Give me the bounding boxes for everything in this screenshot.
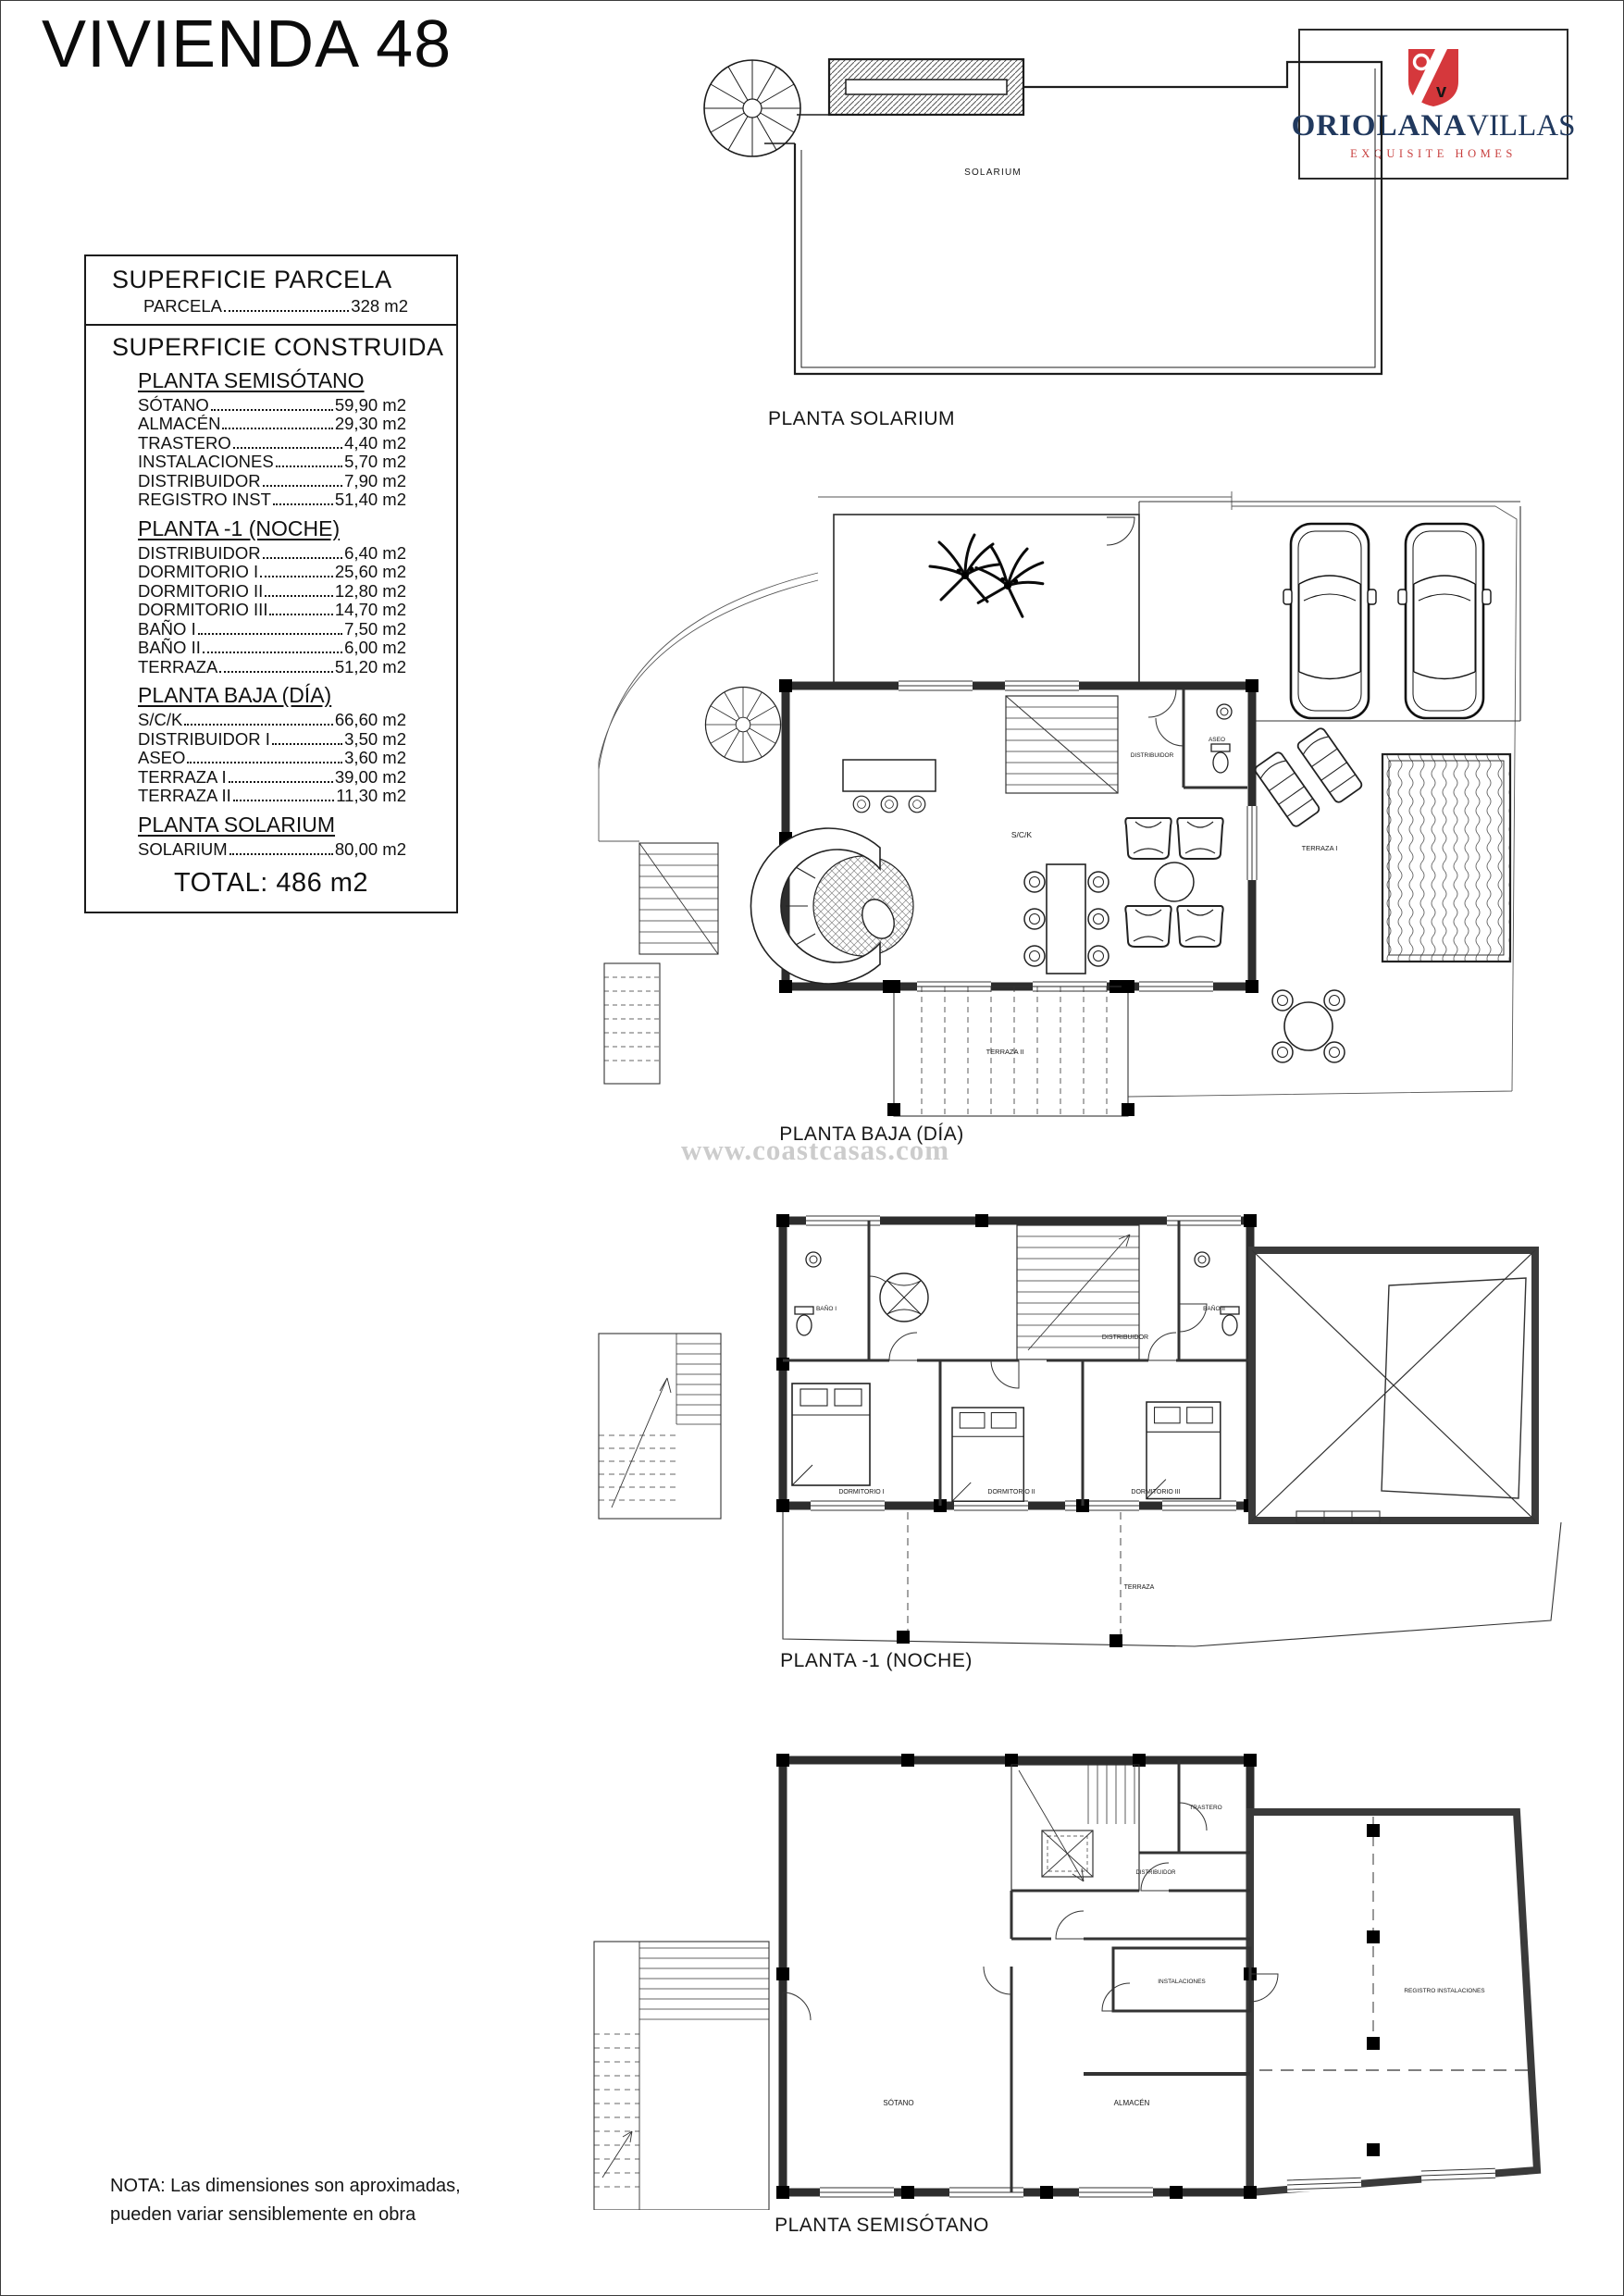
surface-row: DISTRIBUIDOR7,90 m2 [138, 472, 406, 491]
spiral-staircase [705, 687, 780, 762]
dotted-leader [233, 800, 334, 801]
kitchen-island [843, 760, 936, 813]
plan-sheet: VIVIENDA 48 v ORIOLANAVILLAS EXQUISITE H… [0, 0, 1624, 2296]
surface-group: PLANTA SOLARIUM SOLARIUM80,00 m2 [86, 813, 456, 860]
surface-row: ALMACÉN29,30 m2 [138, 415, 406, 434]
parcela-section: SUPERFICIE PARCELA PARCELA328 m2 [86, 256, 456, 326]
plan-noche: BAÑO I BAÑO II DISTRIBUIDOR DORMITORIO I… [584, 1193, 1620, 1656]
dotted-leader [272, 743, 342, 745]
surface-row-label: TERRAZA [138, 658, 217, 677]
room-label-terraza1: TERRAZA I [1302, 844, 1338, 852]
surface-row: INSTALACIONES5,70 m2 [138, 453, 406, 472]
plan-solarium: SOLARIUM [649, 34, 1583, 404]
dotted-leader [184, 724, 333, 726]
surface-row: TERRAZA I39,00 m2 [138, 768, 406, 788]
palm-tree [930, 535, 1050, 619]
terrace-boundary [783, 1512, 1561, 1647]
page-title: VIVIENDA 48 [42, 6, 452, 82]
registro-walls [1250, 1812, 1537, 2192]
surface-row: SOLARIUM80,00 m2 [138, 840, 406, 860]
surface-total: TOTAL: 486 m2 [86, 868, 456, 899]
car [1398, 524, 1491, 718]
surface-group-heading: PLANTA -1 (NOCHE) [138, 516, 340, 541]
note-line1: NOTA: Las dimensiones son aproximadas, [110, 2172, 461, 2201]
surface-row-value: 3,60 m2 [344, 749, 406, 768]
surface-row: BAÑO I7,50 m2 [138, 620, 406, 639]
room-label-instalaciones: INSTALACIONES [1158, 1979, 1206, 1985]
surface-row: BAÑO II6,00 m2 [138, 639, 406, 658]
surface-group-heading: PLANTA SEMISÓTANO [138, 368, 365, 393]
surface-row-label: DISTRIBUIDOR I [138, 730, 270, 750]
surface-row-label: BAÑO I [138, 620, 196, 639]
room-label-almacen: ALMACÉN [1114, 2099, 1150, 2107]
surface-group-heading: PLANTA BAJA (DÍA) [138, 683, 331, 708]
surface-row: PARCELA328 m2 [143, 297, 408, 316]
room-label-bano2: BAÑO II [1203, 1304, 1225, 1312]
surface-row-label: TERRAZA I [138, 768, 227, 788]
dotted-leader [263, 485, 343, 487]
surface-row-label: ASEO [138, 749, 185, 768]
left-staircase [604, 843, 718, 1084]
parcela-heading: SUPERFICIE PARCELA [112, 266, 456, 294]
surface-row-label: DORMITORIO II [138, 582, 263, 602]
surface-row: DISTRIBUIDOR I3,50 m2 [138, 730, 406, 750]
surface-row-value: 7,90 m2 [344, 472, 406, 491]
left-staircase [599, 1334, 721, 1519]
dotted-leader [224, 310, 349, 312]
room-label-terraza: TERRAZA [1124, 1584, 1155, 1591]
surface-group: PLANTA SEMISÓTANO SÓTANO59,90 m2 ALMACÉN… [86, 368, 456, 510]
dotted-leader [203, 652, 342, 653]
dotted-leader [198, 633, 342, 635]
surface-row: DORMITORIO III14,70 m2 [138, 601, 406, 620]
surface-row-label: DISTRIBUIDOR [138, 544, 261, 564]
dotted-leader [276, 465, 342, 467]
car [1283, 524, 1376, 718]
room-label-sotano: SÓTANO [883, 2099, 913, 2107]
surface-row-value: 3,50 m2 [344, 730, 406, 750]
construida-heading: SUPERFICIE CONSTRUIDA [112, 333, 456, 362]
surface-row-label: S/C/K [138, 711, 182, 730]
surface-row-value: 7,50 m2 [344, 620, 406, 639]
caption-solarium: PLANTA SOLARIUM [768, 408, 955, 430]
surface-row-value: 51,40 m2 [335, 490, 406, 510]
hatched-wall [829, 59, 1023, 115]
surface-row-value: 39,00 m2 [335, 768, 406, 788]
room-label-bano1: BAÑO I [816, 1304, 837, 1312]
surface-row-value: 66,60 m2 [335, 711, 406, 730]
surface-row-label: SOLARIUM [138, 840, 228, 860]
room-label-aseo: ASEO [1209, 737, 1225, 743]
terrace-table [1272, 990, 1345, 1062]
note: NOTA: Las dimensiones son aproximadas, p… [110, 2172, 461, 2229]
right-terrace [1254, 726, 1510, 1062]
bed [952, 1408, 1023, 1501]
surface-row: S/C/K66,60 m2 [138, 711, 406, 730]
surface-row-label: REGISTRO INST [138, 490, 271, 510]
room-label-distribuidor: DISTRIBUIDOR [1131, 752, 1174, 759]
surface-row: DISTRIBUIDOR6,40 m2 [138, 544, 406, 564]
surface-row-value: 11,30 m2 [336, 787, 406, 806]
room-label-dorm3: DORMITORIO III [1131, 1489, 1180, 1496]
surface-row-value: 6,40 m2 [344, 544, 406, 564]
left-staircase [594, 1942, 769, 2210]
surface-row-value: 4,40 m2 [344, 434, 406, 453]
pool [1382, 754, 1510, 962]
construida-section: SUPERFICIE CONSTRUIDA PLANTA SEMISÓTANO … [86, 326, 456, 912]
room-label-distribuidor: DISTRIBUIDOR [1102, 1334, 1148, 1341]
caption-semisotano: PLANTA SEMISÓTANO [775, 2215, 989, 2237]
surface-row-label: PARCELA [143, 297, 222, 316]
room-label-trastero: TRASTERO [1189, 1805, 1221, 1811]
dotted-leader [187, 762, 342, 763]
caption-noche: PLANTA -1 (NOCHE) [780, 1650, 973, 1672]
note-line2: pueden variar sensiblemente en obra [110, 2201, 461, 2229]
surface-row-value: 14,70 m2 [335, 601, 406, 620]
surface-row: TERRAZA51,20 m2 [138, 658, 406, 677]
surface-row-value: 80,00 m2 [335, 840, 406, 860]
dotted-leader [273, 503, 333, 505]
room-label-terraza2: TERRAZA II [986, 1048, 1024, 1056]
surface-row: TRASTERO4,40 m2 [138, 434, 406, 453]
surface-row-label: SÓTANO [138, 396, 209, 416]
bed [792, 1384, 870, 1485]
dotted-leader [265, 595, 333, 597]
room-label-registro: REGISTRO INSTALACIONES [1404, 1988, 1485, 1994]
room-label-solarium: SOLARIUM [964, 168, 1022, 178]
surface-row: REGISTRO INST51,40 m2 [138, 490, 406, 510]
dotted-leader [229, 781, 333, 783]
surface-row: DORMITORIO I25,60 m2 [138, 563, 406, 582]
room-label-dorm1: DORMITORIO I [838, 1489, 884, 1496]
surface-row-label: DORMITORIO III [138, 601, 267, 620]
room-label-sck: S/C/K [1011, 830, 1033, 839]
dotted-leader [219, 671, 333, 673]
dotted-leader [211, 409, 333, 411]
surface-row: ASEO3,60 m2 [138, 749, 406, 768]
spiral-staircase [704, 60, 800, 156]
surface-row-value: 25,60 m2 [335, 563, 406, 582]
surface-row-label: ALMACÉN [138, 415, 220, 434]
dining-set [1024, 864, 1109, 974]
void-area [1252, 1250, 1535, 1520]
dotted-leader [229, 853, 333, 855]
surface-row-value: 328 m2 [351, 297, 408, 316]
surface-row-label: INSTALACIONES [138, 453, 274, 472]
surface-row-label: DORMITORIO I [138, 563, 258, 582]
surface-row-label: BAÑO II [138, 639, 201, 658]
surface-row-label: TERRAZA II [138, 787, 231, 806]
surface-row: DORMITORIO II12,80 m2 [138, 582, 406, 602]
surface-row-value: 6,00 m2 [344, 639, 406, 658]
surface-row-label: TRASTERO [138, 434, 231, 453]
surface-row-value: 5,70 m2 [344, 453, 406, 472]
plan-baja: S/C/K DISTRIBUIDOR ASEO TERRAZA I TERRAZ… [584, 482, 1611, 1121]
surface-row-value: 59,90 m2 [335, 396, 406, 416]
dotted-leader [269, 614, 332, 615]
room-label-distribuidor: DISTRIBUIDOR [1135, 1870, 1176, 1876]
surface-row: SÓTANO59,90 m2 [138, 396, 406, 416]
surface-group-heading: PLANTA SOLARIUM [138, 813, 335, 838]
surface-row-label: DISTRIBUIDOR [138, 472, 261, 491]
dotted-leader [233, 447, 342, 449]
bed [1147, 1402, 1221, 1499]
wardrobe-circle [880, 1273, 928, 1322]
surface-row-value: 51,20 m2 [335, 658, 406, 677]
surface-group: PLANTA -1 (NOCHE) DISTRIBUIDOR6,40 m2 DO… [86, 516, 456, 677]
dotted-leader [222, 428, 332, 429]
surface-row-value: 12,80 m2 [335, 582, 406, 602]
dotted-leader [260, 576, 333, 577]
surface-group: PLANTA BAJA (DÍA) S/C/K66,60 m2 DISTRIBU… [86, 683, 456, 806]
surface-table: SUPERFICIE PARCELA PARCELA328 m2 SUPERFI… [84, 254, 458, 913]
surface-row-value: 29,30 m2 [335, 415, 406, 434]
surface-row: TERRAZA II11,30 m2 [138, 787, 406, 806]
plan-semisotano: TRASTERO DISTRIBUIDOR INSTALACIONES SÓTA… [584, 1743, 1620, 2210]
watermark: www.coastcasas.com [681, 1134, 949, 1167]
dotted-leader [263, 557, 343, 559]
room-label-dorm2: DORMITORIO II [987, 1489, 1035, 1496]
